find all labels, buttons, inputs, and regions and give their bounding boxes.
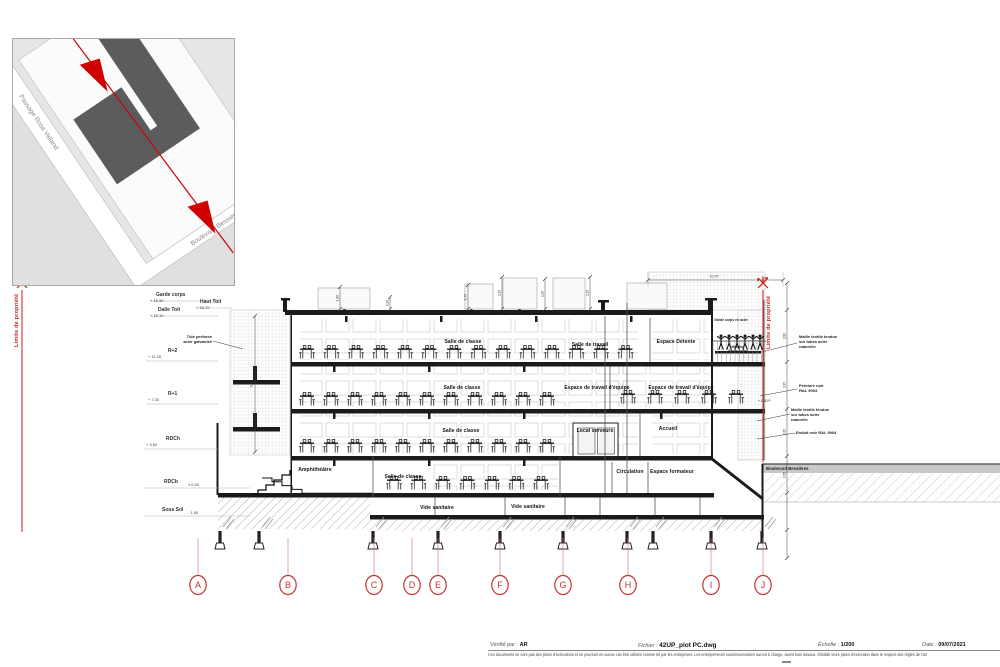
room-label-classroom-rdcb: Salle de classe [384,475,421,481]
street-right-label: Boulevard Bessières [766,466,809,472]
annotation-roof-furniture: Mobilier Garde corps [728,345,748,354]
room-label-amphitheatre: Amphithéâtre [298,468,331,474]
room-label-crawl-space-left: Vide sanitaire [420,506,454,512]
limit-left-label: Limite de propriété [14,294,20,347]
level-elevation: ± 0,00 [188,482,199,487]
room-label-lounge: Espace Détente [657,340,696,346]
date-value: 09/07/2021 [938,642,966,648]
level-elevation: + 15,70 [196,305,209,310]
annotation-mesh-top: Maille textile tendue sur tubes acier na… [799,334,837,350]
file-label: Fichier : [638,643,658,649]
level-name-rdcb: RDCb [164,479,178,485]
sheet-edge-mark [782,661,791,663]
level-elevation: + 15,10 [150,313,163,318]
room-label-work-room: Salle de travail [572,343,609,349]
room-label-circulation: Circulation [616,470,643,476]
annotation-coating: Enduit noir RAL 9004 [796,430,836,435]
titleblock-file: Fichier : 42UP_plot PC.dwg [638,642,717,649]
level-elevation: - 1,80 [188,510,198,515]
titleblock-scale: Échelle : 1/200 [818,642,854,648]
room-label-team-space-right: Espace de travail d'équipe [648,386,713,392]
level-elevation: + 7,30 [148,397,159,402]
level-elevation: + 16,30 [150,298,163,303]
level-name-r-2: R+2 [168,348,177,354]
titleblock-date: Date : 09/07/2021 [922,642,966,648]
date-label: Date : [922,642,937,648]
drawing-sheet: 10,70 9,80 2,803,353,353,35 1,600,901,75… [0,0,1000,667]
annotation-paint: Peinture noir RAL 9004 [799,383,824,393]
level-elevation: + 11,00 [148,354,161,359]
room-label-reception: Accueil [659,427,678,433]
room-label-trainer-space: Espace formateur [650,470,694,476]
level-elevation: + 3,60 [146,442,157,447]
room-label-server-room: Local serveurs [577,429,614,435]
titleblock-disclaimer: Ces documents ne sont pas des plans d'ex… [488,652,927,657]
room-label-classroom-r1: Salle de classe [443,386,480,392]
annotation-roof-railing: Garde corps en acier [714,318,748,322]
scale-value: 1/200 [841,642,855,648]
verified-value: AR [520,642,528,648]
annotation-left-facade: Tôle perforée acier galvanisé [183,334,212,344]
verified-label: Vérifié par : [490,642,518,648]
level-name-r-1: R+1 [168,391,177,397]
annotation-mesh-bottom: Maille textile tendue sur tubes acier na… [791,407,829,423]
room-label-classroom-rdch: Salle de classe [442,429,479,435]
room-label-classroom-r2: Salle de classe [444,340,481,346]
room-label-team-space-left: Espace de travail d'équipe [564,386,629,392]
scale-label: Échelle : [818,642,839,648]
level-name-rdch: RDCh [166,436,180,442]
labels-layer: Limite de propriété Limite de propriété … [0,0,1000,667]
level-name-sous-sol: Sous Sol [162,507,183,513]
room-label-crawl-space-right: Vide sanitaire [511,505,545,511]
titleblock-verified: Vérifié par : AR [490,642,528,648]
limit-right-label: Limite de propriété [766,296,772,349]
file-value: 42UP_plot PC.dwg [659,642,716,649]
annotation-level-p: + 1,00 P [758,399,771,403]
